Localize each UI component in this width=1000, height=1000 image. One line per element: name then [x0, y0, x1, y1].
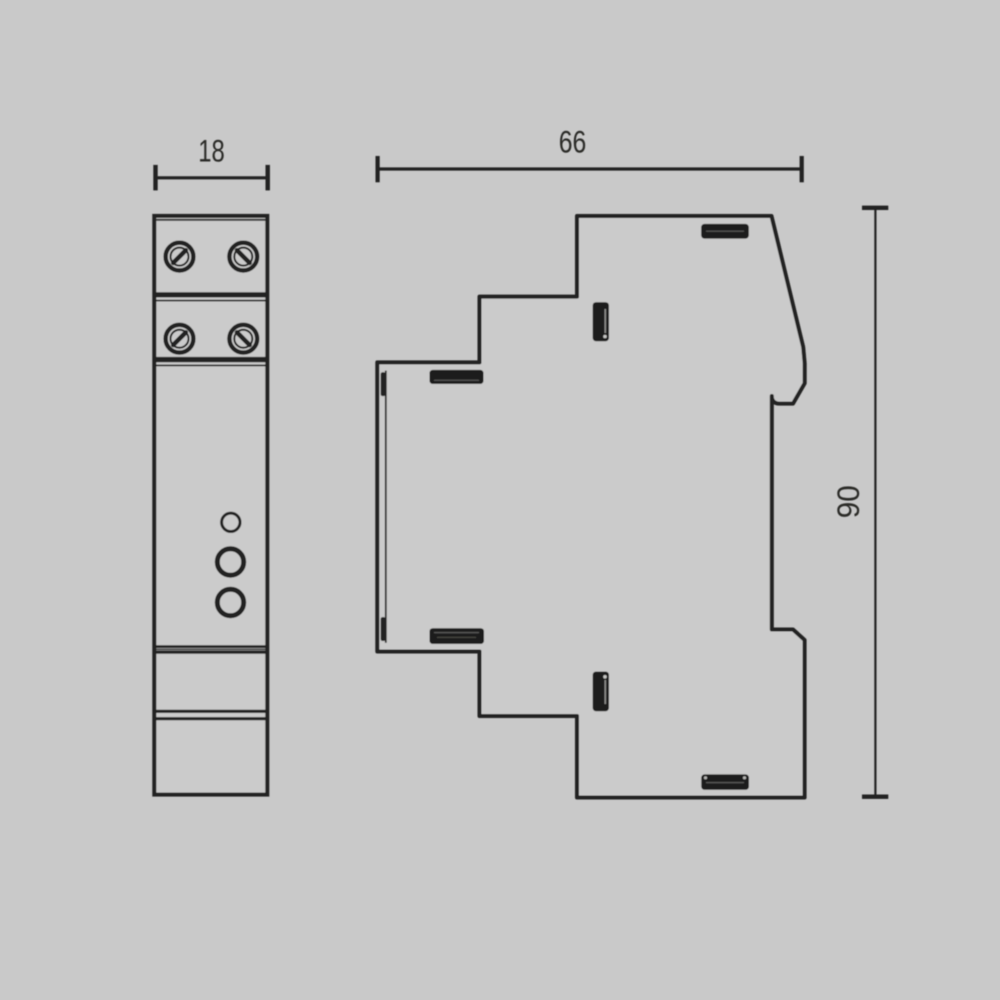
svg-text:66: 66 [559, 123, 587, 159]
svg-text:90: 90 [830, 485, 866, 518]
svg-text:18: 18 [198, 133, 225, 169]
